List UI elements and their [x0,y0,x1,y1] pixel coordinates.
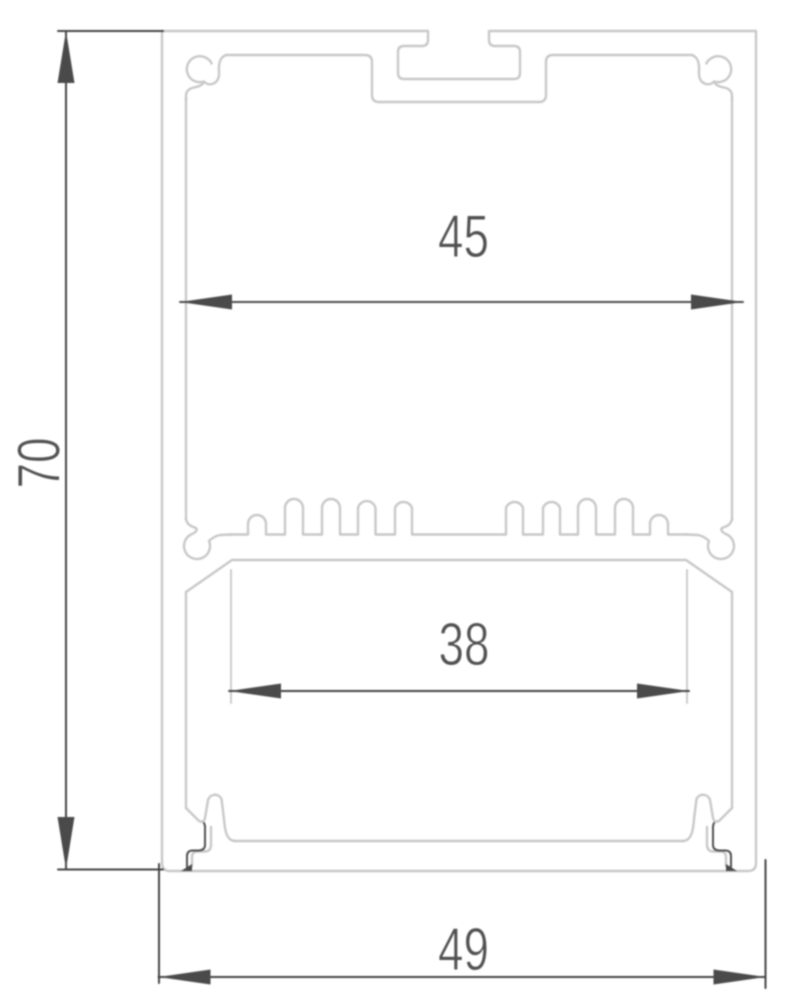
svg-text:45: 45 [438,203,489,270]
svg-text:70: 70 [6,438,73,489]
svg-text:38: 38 [439,611,490,678]
svg-text:49: 49 [438,916,489,983]
